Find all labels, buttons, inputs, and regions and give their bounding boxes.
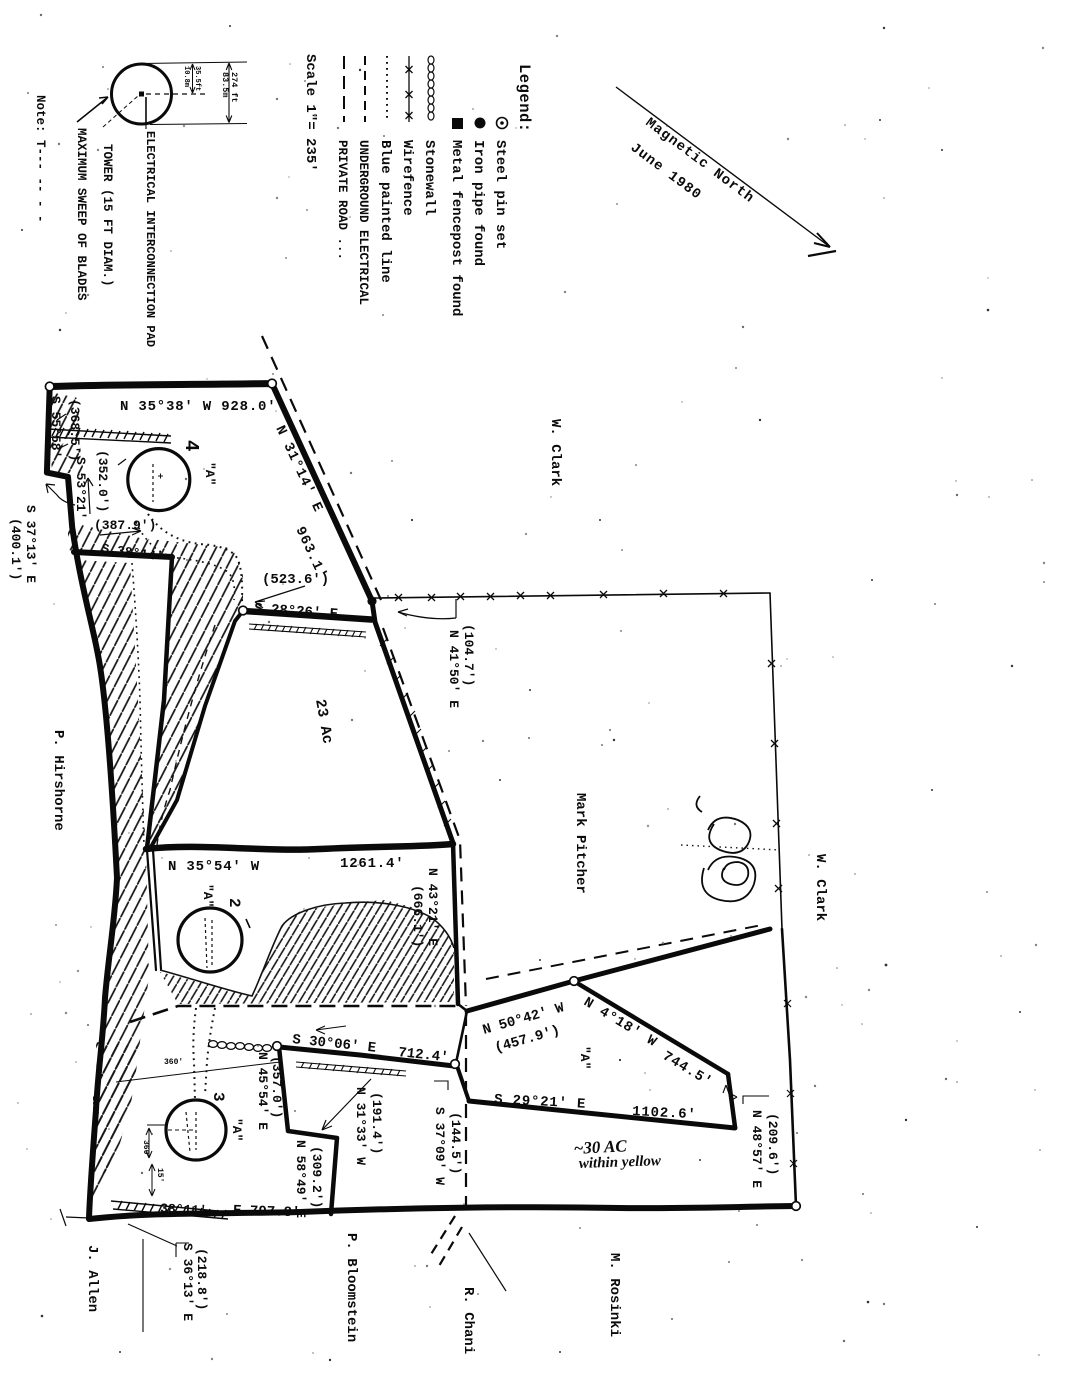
svg-text:M. Rosinki: M. Rosinki [606, 1253, 622, 1337]
svg-text:(209.6'): (209.6') [765, 1113, 780, 1175]
svg-text:(218.8'): (218.8') [194, 1248, 209, 1310]
svg-text:ELECTRICAL INTERCONNECTION PAD: ELECTRICAL INTERCONNECTION PAD [143, 131, 157, 347]
svg-text:N 43°21' E: N 43°21' E [425, 868, 440, 946]
svg-text:"A": "A" [229, 1118, 244, 1141]
svg-text:PRIVATE ROAD ...: PRIVATE ROAD ... [335, 140, 349, 260]
svg-text:S 53°21': S 53°21' [73, 457, 88, 519]
svg-text:N 41°50' E: N 41°50' E [446, 630, 461, 708]
svg-text:(368.5'): (368.5') [67, 399, 82, 461]
svg-text:(400.1'): (400.1') [8, 518, 23, 580]
svg-text:N 35°54' W: N 35°54' W [168, 859, 260, 875]
svg-text:3: 3 [209, 1092, 227, 1102]
svg-text:(523.6'): (523.6') [262, 572, 329, 588]
svg-text:E 797.8': E 797.8' [233, 1203, 301, 1221]
svg-text:Legend:: Legend: [515, 64, 533, 133]
svg-text:P. Bloomstein: P. Bloomstein [343, 1233, 359, 1342]
svg-text:W. Clark: W. Clark [812, 854, 828, 921]
svg-text:within yellow: within yellow [579, 1153, 663, 1172]
svg-text:Blue painted line: Blue painted line [377, 140, 393, 283]
svg-text:S 37°09' W: S 37°09' W [432, 1107, 447, 1185]
svg-text:Metal fencepost found: Metal fencepost found [448, 140, 464, 316]
svg-text:(144.5'): (144.5') [448, 1112, 463, 1174]
svg-text:Scale 1"= 235': Scale 1"= 235' [302, 54, 318, 172]
svg-text:(357.0'): (357.0') [269, 1056, 284, 1118]
svg-text:"A": "A" [200, 884, 215, 907]
svg-text:Note: T--- -- - -: Note: T--- -- - - [33, 95, 47, 223]
svg-text:360': 360' [164, 1058, 183, 1067]
svg-text:"A": "A" [577, 1046, 592, 1069]
svg-text:"A": "A" [202, 462, 217, 485]
svg-text:MAXIMUM SWEEP OF BLADES: MAXIMUM SWEEP OF BLADES [74, 128, 88, 301]
svg-text:(352.0'): (352.0') [95, 450, 110, 512]
svg-text:(666.1'): (666.1') [410, 885, 425, 947]
svg-text:Steel pin set: Steel pin set [492, 140, 508, 249]
svg-text:S 37°13' E: S 37°13' E [23, 505, 38, 583]
svg-text:W. Clark: W. Clark [547, 419, 563, 486]
svg-text:15': 15' [155, 1168, 164, 1182]
svg-text:1102.6': 1102.6' [632, 1104, 697, 1123]
svg-text:S 36°13' E: S 36°13' E [180, 1243, 195, 1321]
svg-text:274 ft: 274 ft [229, 72, 239, 103]
svg-text:N 48°57' E: N 48°57' E [749, 1110, 764, 1188]
svg-text:(191.4'): (191.4') [369, 1092, 384, 1154]
svg-text:83.5m: 83.5m [220, 72, 230, 98]
svg-text:N 45°54' E: N 45°54' E [255, 1052, 270, 1130]
svg-text:35.5ft: 35.5ft [193, 66, 201, 91]
svg-text:S 55°58': S 55°58' [48, 396, 63, 458]
svg-text:Iron pipe found: Iron pipe found [470, 140, 486, 266]
svg-text:UNDERGROUND ELECTRICAL: UNDERGROUND ELECTRICAL [356, 140, 370, 305]
svg-text:360: 360 [141, 1140, 150, 1155]
svg-text:N 31°33' W: N 31°33' W [353, 1087, 368, 1165]
svg-text:4: 4 [180, 440, 202, 451]
svg-text:2: 2 [225, 898, 243, 908]
svg-text:J. Allen: J. Allen [84, 1245, 100, 1312]
svg-text:280': 280' [90, 1096, 99, 1115]
svg-text:P. Hirshorne: P. Hirshorne [50, 730, 66, 831]
svg-text:38°11': 38°11' [160, 1201, 208, 1218]
svg-text:1261.4': 1261.4' [340, 856, 404, 872]
svg-text:TOWER (15 FT DIAM.): TOWER (15 FT DIAM.) [100, 144, 114, 287]
svg-text:R. Chani: R. Chani [460, 1287, 476, 1354]
svg-text:(104.7'): (104.7') [461, 624, 476, 686]
svg-text:Mark Pitcher: Mark Pitcher [572, 793, 588, 894]
svg-text:(387.9'): (387.9') [94, 518, 156, 533]
svg-text:(309.2'): (309.2') [309, 1146, 324, 1208]
svg-text:Wirefence: Wirefence [399, 140, 415, 216]
svg-text:N 35°38' W 928.0': N 35°38' W 928.0' [120, 399, 276, 415]
svg-text:10.8m: 10.8m [182, 66, 190, 87]
